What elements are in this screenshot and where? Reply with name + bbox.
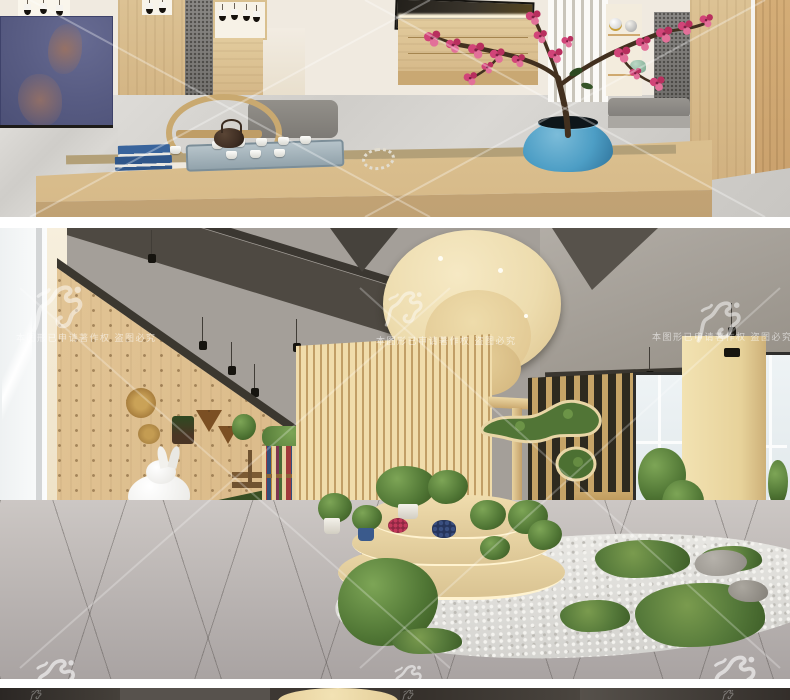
- panel-gap: [0, 679, 790, 688]
- copyright-watermark-text: 本图形已申请著作权 盗图必究: [652, 332, 790, 342]
- bottle: [56, 5, 63, 16]
- display-pot: [398, 504, 418, 519]
- plum-blossom-branches: [420, 0, 720, 140]
- tea-cup: [170, 146, 181, 154]
- dragon-seal-watermark: [703, 648, 763, 679]
- straw-hat: [126, 388, 156, 418]
- dragon-seal-watermark: [700, 688, 756, 700]
- blueberry-bowl: [432, 520, 456, 538]
- moss-patch-front: [392, 628, 462, 654]
- hanging-plant-pocket: [172, 416, 194, 444]
- tea-cup: [278, 137, 289, 145]
- garden-rock: [728, 580, 768, 602]
- dark-ceiling-right: [400, 688, 580, 700]
- hanging-bottle-shelf-mid: [142, 0, 172, 15]
- bottle: [146, 3, 153, 14]
- screenshot-stage: 本图形已申请著作权 盗图必究 本图形已申请著作权 盗图必究 本图形已申请著作权 …: [0, 0, 790, 700]
- disc-downlight: [498, 268, 503, 273]
- copyright-watermark-text: 本图形已申请著作权 盗图必究: [16, 333, 157, 343]
- bottle-display-niche: [213, 0, 267, 40]
- track-spotlight: [148, 254, 156, 263]
- dragon-seal-watermark: [388, 653, 426, 679]
- bottle: [159, 2, 166, 13]
- tea-cup: [256, 138, 267, 146]
- display-pot: [324, 518, 340, 534]
- dragon-seal-watermark: [380, 277, 428, 341]
- bottle: [40, 3, 47, 14]
- tea-room-render: [0, 0, 790, 217]
- track-spotlight: [199, 341, 207, 350]
- bottle: [219, 10, 226, 21]
- track-spotlight: [228, 366, 236, 375]
- panel-gap: [0, 217, 790, 228]
- ceiling-band-far-right: [580, 688, 790, 700]
- ceiling-band: [120, 688, 270, 700]
- copyright-watermark-text: 本图形已申请著作权 盗图必究: [376, 336, 517, 346]
- moss-patch: [560, 600, 630, 632]
- next-render-partial: [0, 688, 790, 700]
- butterfly-motif: [18, 74, 62, 126]
- wood-cabinet-back: [213, 38, 263, 100]
- disc-downlight: [524, 314, 528, 318]
- wood-stool: [232, 472, 262, 478]
- dragon-seal-watermark: [393, 688, 423, 700]
- bottle: [231, 9, 238, 20]
- tea-cup: [250, 150, 261, 158]
- blue-fabric-screen: [0, 16, 113, 126]
- display-pot-blue: [358, 528, 374, 541]
- bottle: [24, 4, 31, 15]
- bottle: [243, 10, 250, 21]
- moss-patch: [595, 540, 690, 578]
- tea-cup: [300, 136, 311, 144]
- dragon-seal-watermark: [25, 277, 90, 341]
- hanging-bottle-shelf-left: [18, 0, 70, 17]
- stool-back: [248, 450, 252, 482]
- teapot-handle: [221, 119, 242, 133]
- dragon-seal-watermark: [15, 688, 57, 700]
- bottle: [253, 11, 260, 22]
- tea-cup: [274, 149, 285, 157]
- moss-wall-art: [480, 386, 610, 496]
- disc-downlight: [438, 256, 443, 261]
- butterfly-motif: [48, 24, 82, 74]
- tea-cup: [226, 151, 237, 159]
- wood-showroom-render: 本图形已申请著作权 盗图必究 本图形已申请著作权 盗图必究 本图形已申请著作权 …: [0, 228, 790, 679]
- wood-disc-top: [278, 688, 398, 700]
- straw-hat-small: [138, 424, 160, 444]
- blue-book-bottom: [115, 155, 172, 171]
- dragon-seal-watermark: [27, 651, 81, 679]
- berry-basket: [388, 518, 408, 533]
